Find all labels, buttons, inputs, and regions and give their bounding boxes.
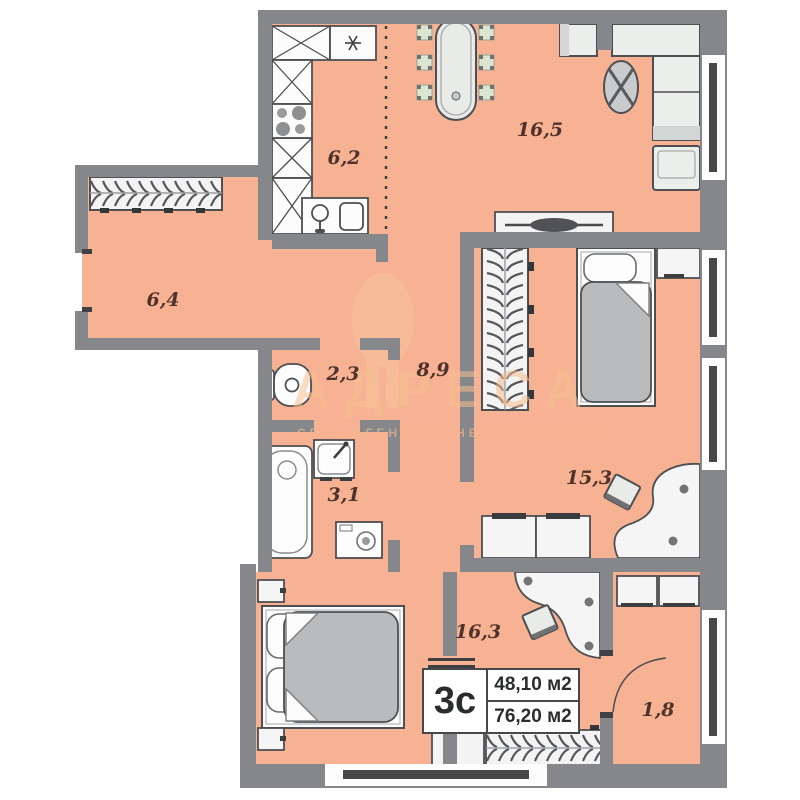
fridge-icon xyxy=(330,26,376,60)
floorplan-image: АДРЕСА СЕТЬ АГЕНТСТВ НЕДВИЖИМОСТИ 6,2 16… xyxy=(0,0,800,800)
room-label-bathroom: 3,1 xyxy=(327,484,360,506)
room-label-hallway: 6,4 xyxy=(146,289,179,311)
watermark-tagline: СЕТЬ АГЕНТСТВ НЕДВИЖИМОСТИ xyxy=(297,427,610,439)
desk-workstations-icon xyxy=(482,513,590,558)
dining-table-icon xyxy=(436,18,476,120)
kitchen-sink-icon xyxy=(302,198,368,234)
area-info-box: 3с 48,10 м2 76,20 м2 xyxy=(422,668,580,734)
room-label-bedroom-right: 15,3 xyxy=(566,467,612,489)
room-label-living-room: 16,5 xyxy=(517,119,563,141)
washing-machine-icon xyxy=(336,522,382,558)
room-label-bedroom-bottom: 16,3 xyxy=(455,621,501,643)
hall-wardrobe-hangers-icon xyxy=(90,177,222,213)
room-label-kitchen: 6,2 xyxy=(327,147,360,169)
double-bed-icon xyxy=(262,606,404,728)
total-area-value: 76,20 м2 xyxy=(488,700,578,732)
living-area-value: 48,10 м2 xyxy=(488,670,578,700)
room-label-wc: 2,3 xyxy=(326,363,359,385)
nightstand-icon xyxy=(657,248,700,278)
bottom-cabinet-icon xyxy=(432,730,484,766)
room-label-corridor: 8,9 xyxy=(416,359,449,381)
bathroom-sink-icon xyxy=(314,440,354,481)
coffee-table-icon xyxy=(604,61,638,113)
room-label-balcony: 1,8 xyxy=(641,699,674,721)
plan-type-label: 3с xyxy=(424,670,488,732)
armchair-icon xyxy=(653,146,700,190)
stove-icon xyxy=(272,104,312,138)
